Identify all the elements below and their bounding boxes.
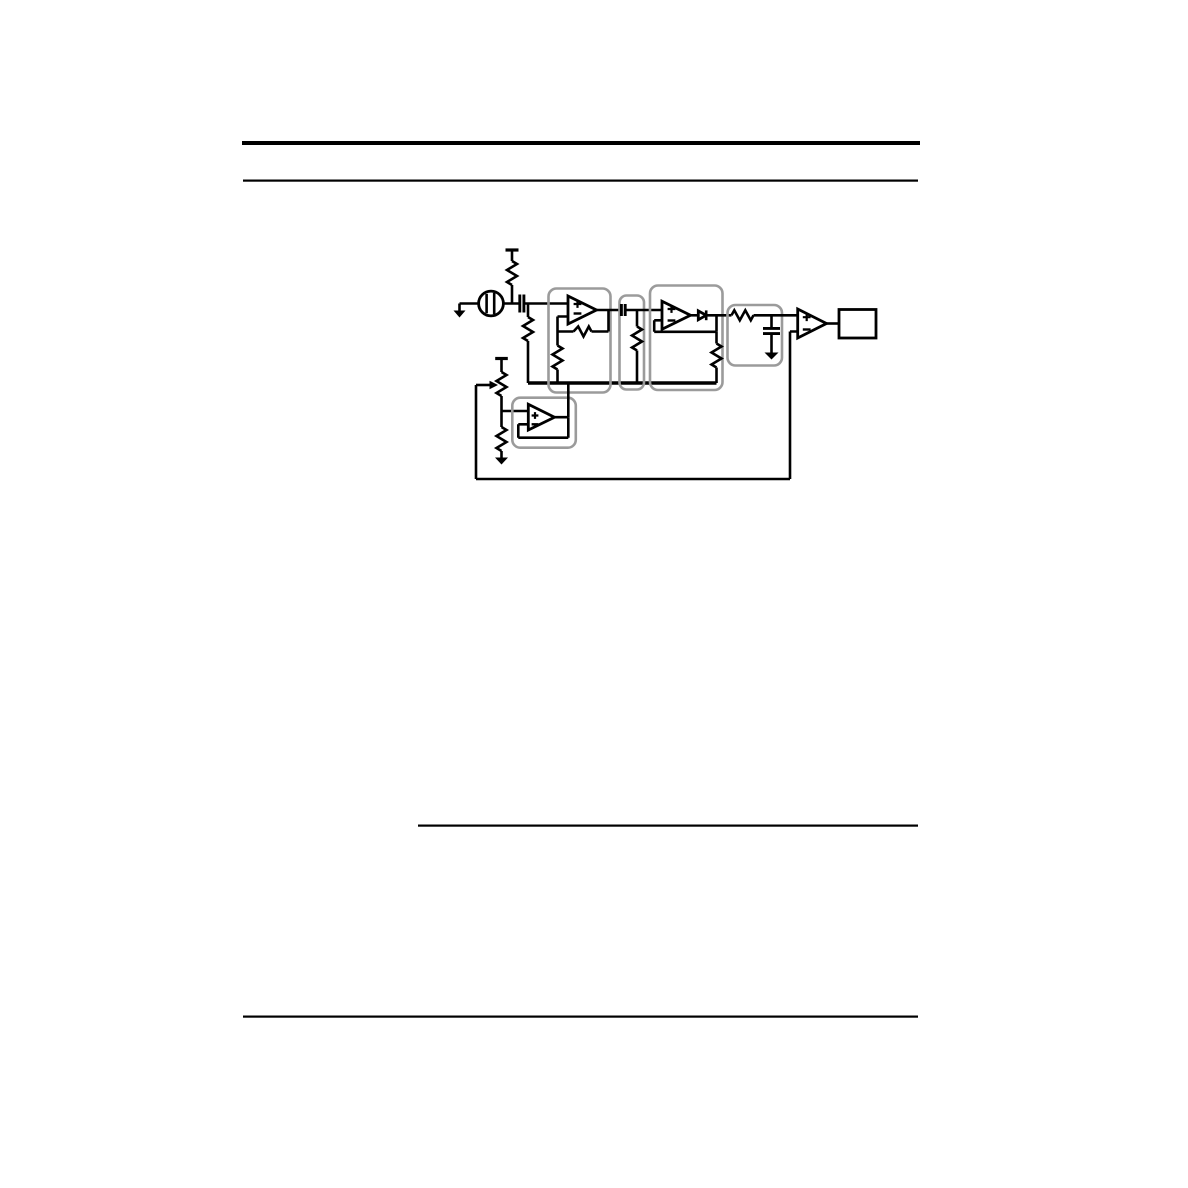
series-resistor-symbol [732, 310, 754, 320]
comparator-group [790, 309, 839, 479]
supply-rail-group [506, 250, 519, 304]
input-bias-resistor-group [523, 304, 533, 384]
divider-resistor-symbol [497, 427, 507, 451]
threshold-wire [476, 385, 790, 479]
microphone-group [454, 291, 520, 317]
stage2-group [650, 286, 732, 391]
shunt-resistor-symbol [712, 344, 722, 368]
lowpass-filter-group [728, 305, 798, 366]
opamp-symbol [662, 301, 691, 329]
ground-symbol [765, 353, 779, 360]
wire [592, 310, 609, 332]
potentiometer-symbol [497, 372, 507, 396]
wire [460, 304, 479, 311]
highpass-filter-group [620, 296, 663, 390]
mic-bias-resistor-symbol [507, 261, 517, 285]
feedback-resistor-symbol [574, 327, 592, 337]
threshold-line-group [476, 381, 790, 479]
middle-rule [418, 825, 918, 827]
top-thick-rule [242, 141, 920, 145]
shunt-resistor-symbol [632, 327, 642, 351]
resistor-symbol [523, 317, 533, 341]
opamp-symbol [528, 404, 554, 430]
ground-symbol [454, 311, 466, 318]
inverting-input-wire [790, 332, 798, 480]
gain-resistor-symbol [553, 346, 563, 370]
output-block [839, 310, 876, 339]
top-thin-rule [243, 180, 918, 182]
ground-symbol [495, 458, 508, 465]
opamp-symbol [568, 296, 597, 324]
circuit-schematic [0, 0, 1188, 1188]
bottom-rule [243, 1016, 918, 1018]
opamp-symbol [798, 309, 827, 338]
microphone-symbol [479, 291, 504, 316]
document-page [0, 0, 1188, 1188]
